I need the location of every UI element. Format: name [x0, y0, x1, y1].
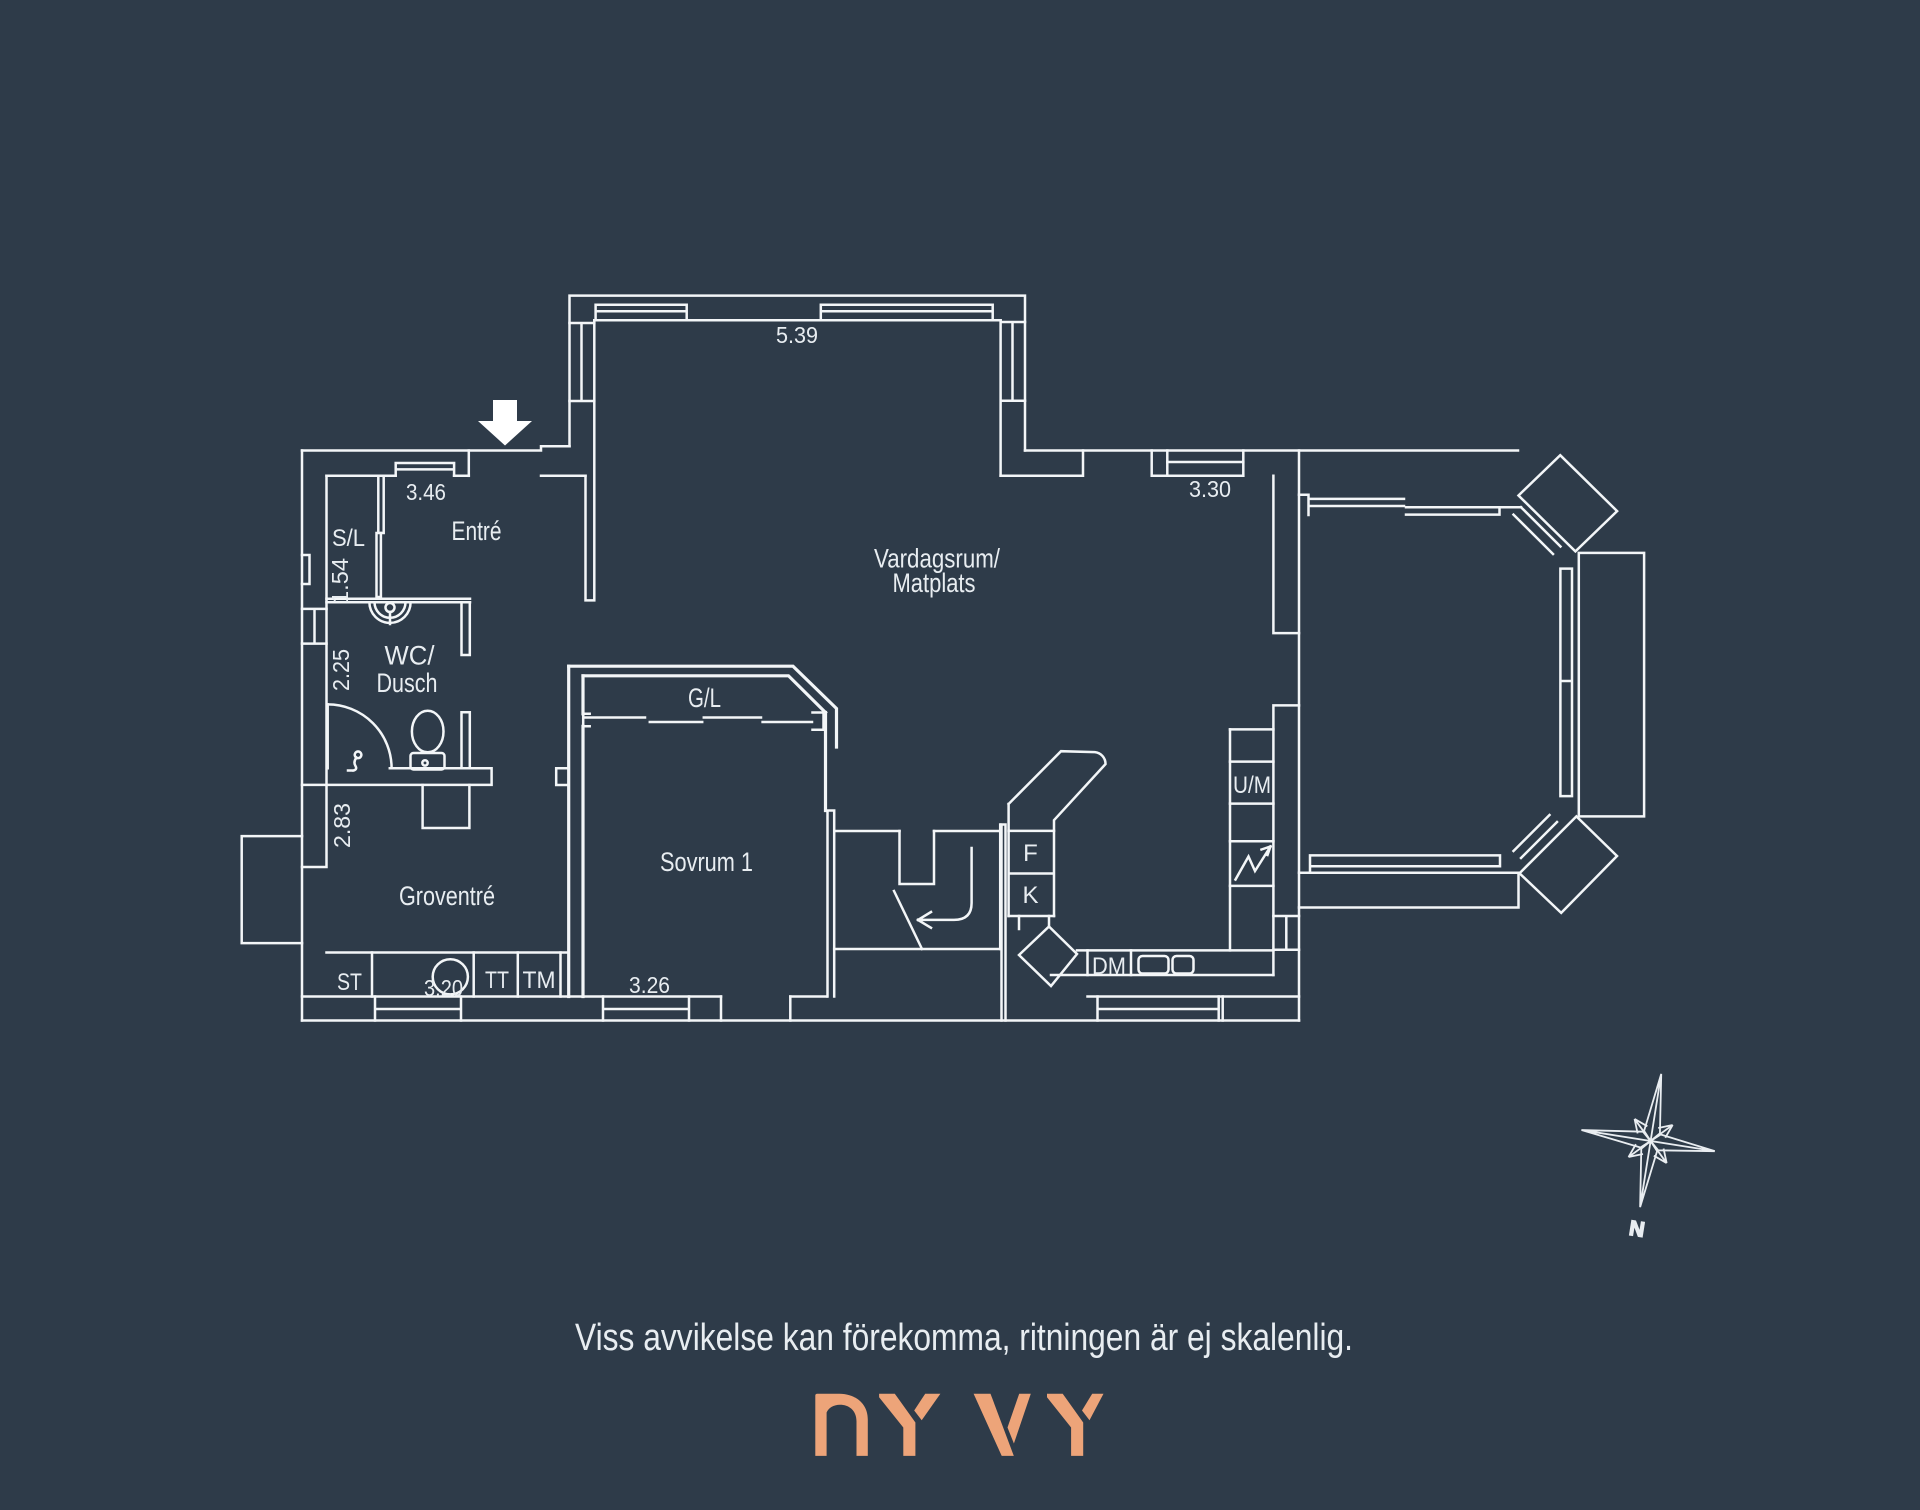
- svg-text:Viss avvikelse kan förekomma,: Viss avvikelse kan förekomma, ritningen …: [575, 1317, 1353, 1359]
- svg-text:Matplats: Matplats: [893, 568, 976, 598]
- svg-text:Dusch: Dusch: [377, 668, 438, 698]
- svg-text:2.25: 2.25: [328, 649, 354, 691]
- svg-text:Groventré: Groventré: [399, 881, 495, 911]
- svg-text:1.54: 1.54: [327, 558, 353, 604]
- svg-text:3.20: 3.20: [424, 975, 463, 1001]
- svg-text:Entré: Entré: [452, 516, 502, 546]
- svg-text:3.26: 3.26: [629, 972, 670, 998]
- svg-text:F: F: [1023, 840, 1038, 867]
- svg-text:TT: TT: [485, 967, 509, 994]
- svg-text:3.46: 3.46: [406, 479, 446, 505]
- svg-text:U/M: U/M: [1233, 772, 1271, 799]
- svg-text:3.30: 3.30: [1189, 476, 1231, 502]
- svg-text:2.83: 2.83: [329, 803, 355, 848]
- svg-text:S/L: S/L: [332, 525, 365, 552]
- svg-text:N: N: [1628, 1217, 1647, 1242]
- svg-text:5.39: 5.39: [776, 322, 818, 348]
- svg-text:Sovrum 1: Sovrum 1: [660, 847, 753, 877]
- svg-text:K: K: [1022, 882, 1038, 909]
- svg-text:ST: ST: [337, 969, 362, 996]
- svg-text:G/L: G/L: [688, 683, 721, 713]
- svg-text:WC/: WC/: [385, 641, 435, 671]
- svg-text:DM: DM: [1092, 953, 1126, 980]
- svg-text:TM: TM: [523, 967, 556, 994]
